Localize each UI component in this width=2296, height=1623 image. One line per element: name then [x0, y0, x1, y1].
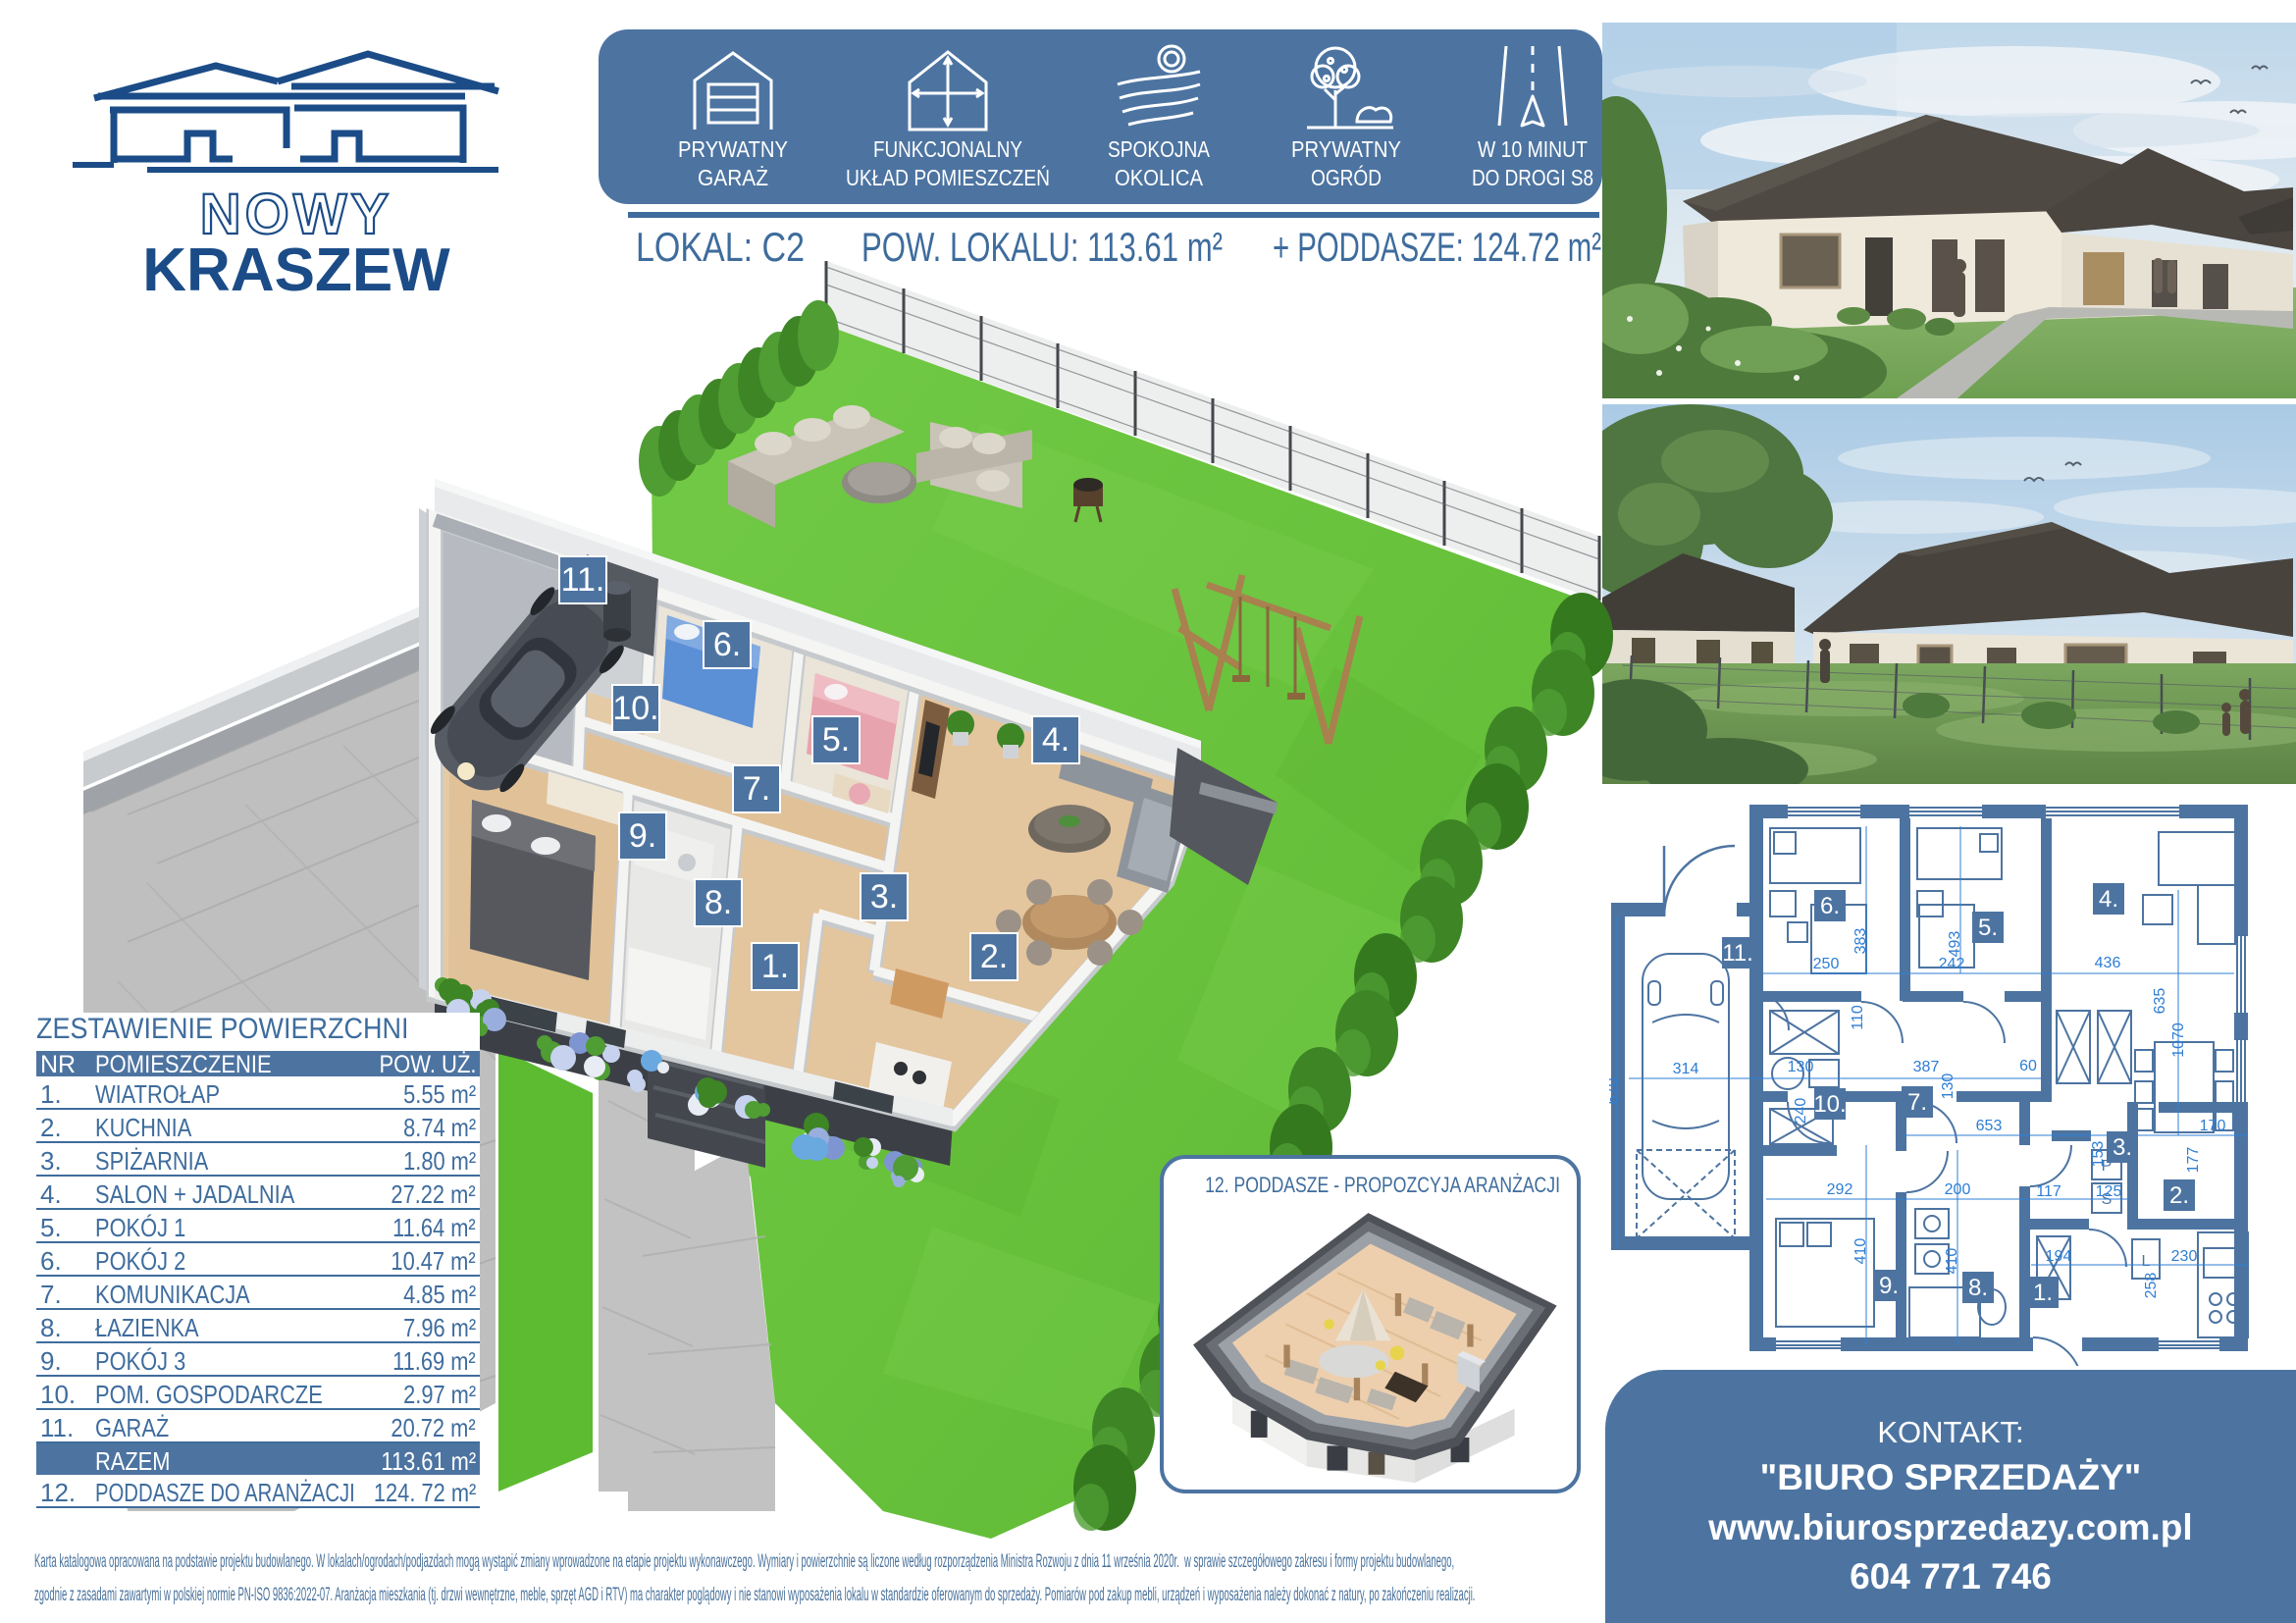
svg-text:6.: 6. [1820, 893, 1840, 919]
svg-text:8.: 8. [1968, 1275, 1988, 1301]
svg-text:410: 410 [1852, 1238, 1869, 1265]
svg-text:194: 194 [2046, 1248, 2072, 1265]
svg-text:5.: 5. [822, 721, 850, 759]
svg-text:11.: 11. [1722, 940, 1753, 967]
svg-text:2.: 2. [2169, 1182, 2189, 1209]
svg-text:383: 383 [1852, 928, 1869, 955]
svg-text:2.: 2. [980, 938, 1008, 975]
svg-text:493: 493 [1947, 931, 1963, 958]
svg-text:410: 410 [1944, 1248, 1960, 1275]
svg-text:60: 60 [2019, 1058, 2037, 1074]
svg-text:1070: 1070 [2170, 1022, 2187, 1058]
svg-text:7.: 7. [743, 770, 770, 808]
svg-text:10.: 10. [612, 690, 658, 727]
svg-text:242: 242 [1939, 956, 1965, 972]
svg-text:1.: 1. [761, 948, 789, 985]
svg-text:L: L [2142, 1253, 2151, 1270]
svg-text:6.: 6. [713, 626, 741, 663]
svg-text:3.: 3. [870, 878, 898, 916]
svg-text:130: 130 [1940, 1073, 1957, 1100]
svg-text:117: 117 [2036, 1183, 2061, 1200]
svg-text:230: 230 [2171, 1248, 2198, 1265]
svg-text:200: 200 [1945, 1181, 1971, 1198]
svg-text:1.: 1. [2033, 1280, 2053, 1306]
svg-text:4.: 4. [2099, 886, 2118, 913]
svg-text:635: 635 [2152, 988, 2168, 1015]
svg-text:7.: 7. [1907, 1089, 1927, 1116]
svg-text:3.: 3. [2113, 1134, 2132, 1161]
svg-text:314: 314 [1673, 1061, 1699, 1077]
svg-text:250: 250 [1813, 956, 1840, 972]
svg-text:387: 387 [1913, 1059, 1940, 1075]
svg-text:9.: 9. [629, 817, 656, 855]
svg-text:177: 177 [2185, 1147, 2202, 1174]
svg-text:153: 153 [2090, 1141, 2107, 1168]
svg-text:9.: 9. [1879, 1273, 1899, 1299]
svg-text:11.: 11. [561, 561, 605, 599]
svg-text:292: 292 [1827, 1181, 1853, 1198]
svg-text:670: 670 [1609, 1078, 1621, 1105]
svg-text:110: 110 [1850, 1005, 1866, 1030]
svg-text:4.: 4. [1042, 721, 1070, 759]
svg-text:436: 436 [2095, 955, 2121, 971]
svg-text:258: 258 [2143, 1273, 2160, 1299]
svg-text:130: 130 [1788, 1059, 1814, 1075]
svg-text:5.: 5. [1978, 915, 1998, 941]
svg-text:170: 170 [2200, 1118, 2226, 1134]
svg-text:653: 653 [1976, 1118, 2003, 1134]
svg-text:125: 125 [2096, 1183, 2122, 1200]
svg-text:240: 240 [1793, 1098, 1809, 1125]
svg-text:10.: 10. [1813, 1091, 1846, 1118]
svg-text:8.: 8. [704, 884, 732, 921]
